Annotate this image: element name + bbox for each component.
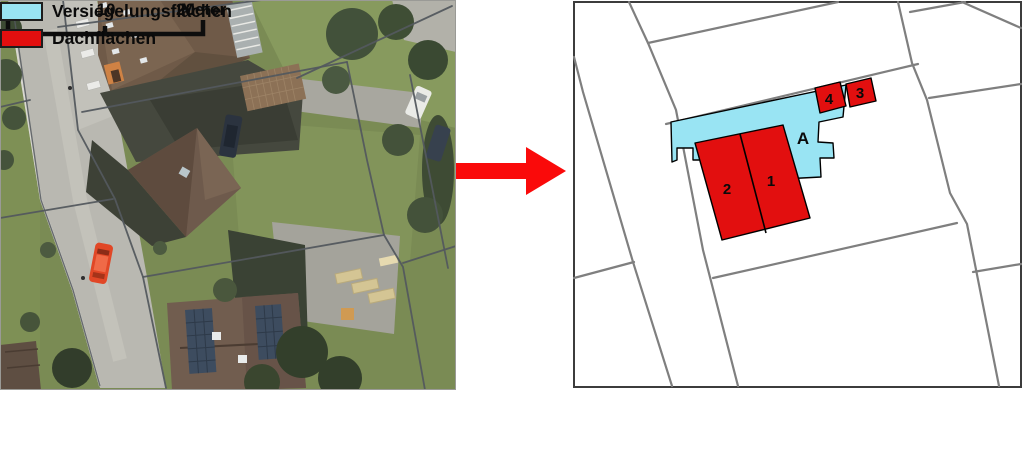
legend-item-roof: Dachflächen bbox=[0, 27, 232, 50]
vector-map-panel: 2 1 A 4 3 bbox=[573, 1, 1022, 388]
legend-label-roof: Dachflächen bbox=[52, 28, 156, 49]
legend-swatch-roof bbox=[0, 29, 43, 48]
legend: Versiegelungsflächen Dachflächen bbox=[0, 0, 232, 50]
label-sealed-a: A bbox=[797, 129, 809, 148]
pedestrian-dot bbox=[68, 86, 72, 90]
arrow-right-icon bbox=[456, 146, 568, 196]
legend-label-sealed: Versiegelungsflächen bbox=[52, 1, 232, 22]
label-roof-3: 3 bbox=[856, 85, 864, 102]
building-bottom-left bbox=[0, 341, 41, 390]
label-roof-4: 4 bbox=[825, 91, 834, 108]
legend-item-sealed: Versiegelungsflächen bbox=[0, 0, 232, 23]
figure: 2 1 A 4 3 0 10 20 Meter Versiegelungsflä… bbox=[0, 0, 1024, 476]
solar-panel bbox=[185, 308, 216, 374]
legend-swatch-sealed bbox=[0, 2, 43, 21]
label-roof-1: 1 bbox=[767, 173, 775, 190]
orthophoto-panel bbox=[0, 0, 456, 390]
sandbox bbox=[341, 308, 354, 320]
label-roof-2: 2 bbox=[723, 181, 731, 198]
pedestrian-dot bbox=[81, 276, 85, 280]
